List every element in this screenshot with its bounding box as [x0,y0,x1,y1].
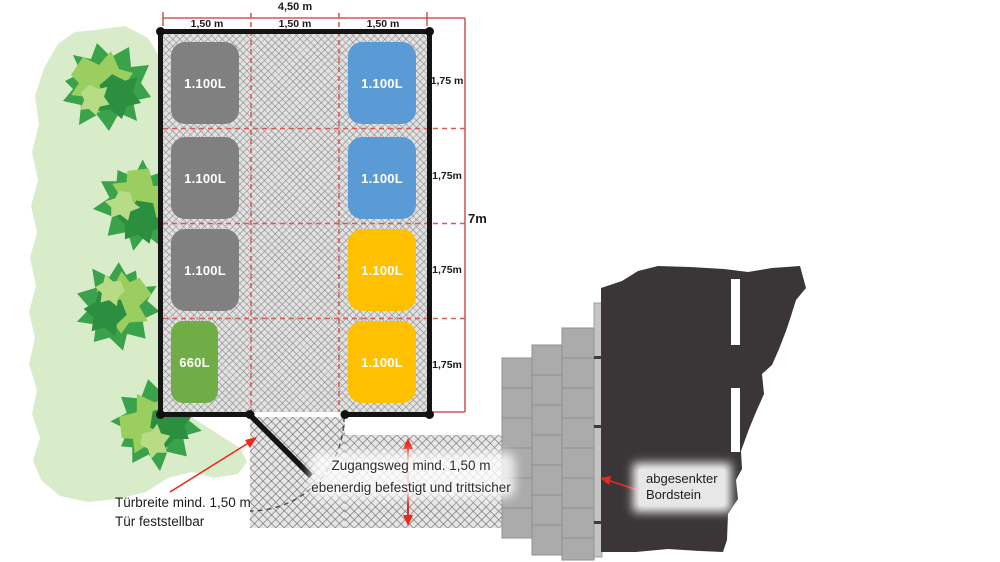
dimension-height-total: 7m [468,212,498,225]
dimension-width-total: 4,50 m [255,2,335,13]
door-note: Türbreite mind. 1,50 m Tür feststellbar [115,494,251,532]
dimension-width-seg-1: 1,50 m [167,19,247,30]
dimension-height-seg-3: 1,75m [430,265,464,276]
access-path-note-line2: ebenerdig befestigt und trittsicher [300,477,522,499]
curb-note-line2: Bordstein [646,487,718,503]
dimension-width-seg-2: 1,50 m [255,19,335,30]
dimension-width-seg-3: 1,50 m [343,19,423,30]
curb-note: abgesenkter Bordstein [639,469,725,506]
site-plan-diagram: 1.100L 1.100L 1.100L 660L 1.100L 1.100L … [0,0,1000,562]
dimension-height-seg-1: 1,75 m [430,76,464,87]
access-path-note: Zugangsweg mind. 1,50 m ebenerdig befest… [300,455,522,498]
access-path-note-line1: Zugangsweg mind. 1,50 m [300,455,522,477]
dimension-height-seg-2: 1,75m [430,171,464,182]
door-note-line2: Tür feststellbar [115,513,251,532]
door-annotation-arrow [170,437,257,492]
dimension-height-seg-4: 1,75m [430,360,464,371]
door-note-line1: Türbreite mind. 1,50 m [115,494,251,513]
curb-annotation-arrow [600,476,638,490]
curb-note-line1: abgesenkter [646,471,718,487]
wall-post-dots [156,27,434,419]
